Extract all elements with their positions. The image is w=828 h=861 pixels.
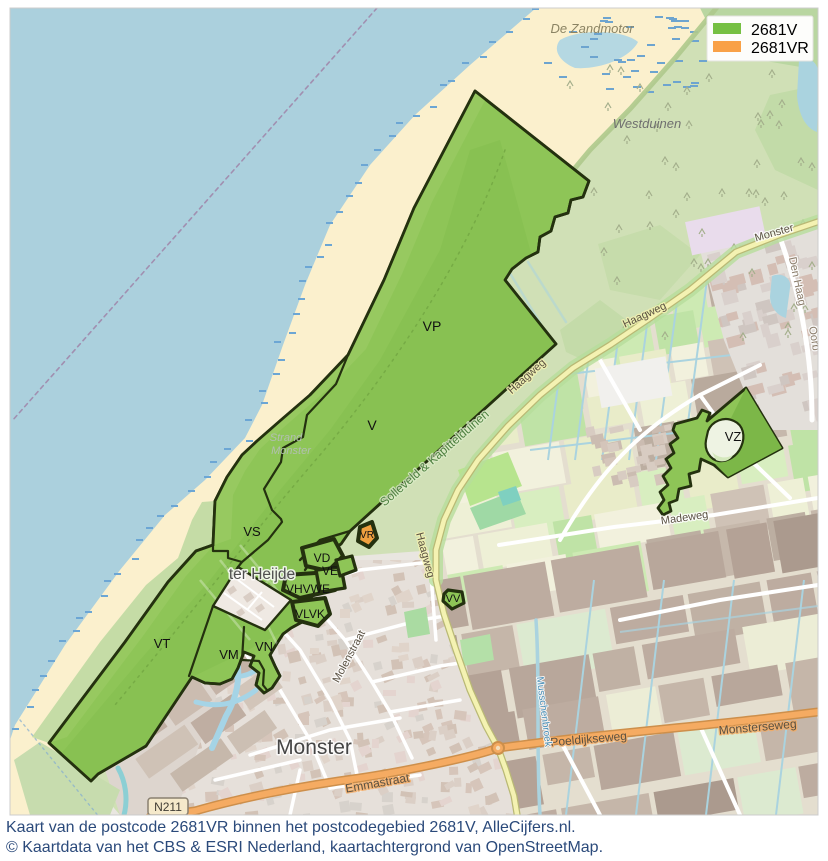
svg-text:2681VR: 2681VR: [751, 40, 809, 57]
svg-text:VT: VT: [154, 636, 171, 651]
svg-text:VS: VS: [243, 524, 261, 539]
svg-text:Strand: Strand: [270, 432, 303, 444]
svg-text:De Zandmotor: De Zandmotor: [550, 21, 634, 36]
svg-text:VP: VP: [423, 318, 442, 334]
svg-text:ter Heijde: ter Heijde: [229, 566, 295, 583]
svg-text:N211: N211: [154, 800, 182, 814]
svg-text:VD: VD: [314, 551, 331, 565]
svg-text:VE: VE: [322, 564, 338, 578]
svg-text:Monster: Monster: [276, 736, 352, 759]
svg-text:VN: VN: [255, 639, 273, 654]
svg-text:VV: VV: [446, 593, 461, 605]
svg-text:VR: VR: [360, 530, 374, 541]
svg-text:Monster: Monster: [271, 445, 312, 457]
svg-text:VM: VM: [219, 647, 239, 662]
svg-text:VLVK: VLVK: [295, 607, 325, 621]
svg-text:VZ: VZ: [725, 429, 742, 444]
svg-text:2681V: 2681V: [751, 22, 798, 39]
svg-text:V: V: [367, 417, 377, 433]
svg-text:Westduinen: Westduinen: [613, 116, 681, 131]
svg-text:VHVWE: VHVWE: [286, 582, 330, 596]
